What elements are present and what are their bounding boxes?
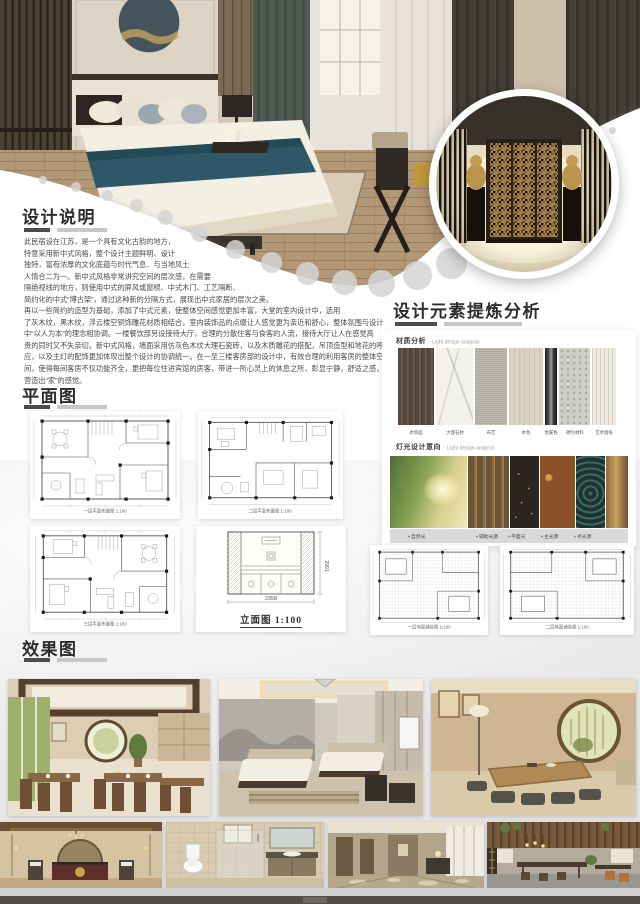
lighting-photo-strip [390, 456, 628, 528]
desc-line: 特意采用新中式风格，整个设计主题鲜明、设计 [24, 248, 383, 260]
title-rule [24, 658, 107, 662]
swatch-marble [436, 348, 473, 425]
desc-line: 此民宿设在江苏，是一个具有文化古韵的地方， [24, 236, 383, 248]
swatch-fabric [475, 348, 507, 425]
plan-caption: 一层地面铺装图 1:100 [407, 624, 450, 629]
desc-line: 应，以及主灯的配饰更加体现出整个设计的协调统一。在一至三楼客房部的设计中，有效合… [24, 351, 383, 363]
lighting-caption-band: 自然光 辅助光源 平面光 主光源 点光源 [390, 529, 628, 543]
light-caption: 辅助光源 [476, 533, 498, 540]
desc-line: 隔绝视线的地方，则使用中式的屏风或窗棂、中式木门、工艺隔断、 [24, 282, 383, 294]
light-caption: 自然光 [408, 533, 425, 540]
light-photo-warm-column [606, 456, 628, 528]
render-photo-guest-bedroom [219, 679, 423, 816]
design-description-paragraph: 此民宿设在江苏，是一个具有文化古韵的地方， 特意采用新中式风格，整个设计主题鲜明… [24, 236, 383, 386]
elevation-drawing: 2358 2991 [196, 526, 346, 610]
section-title-element-analysis: 设计元素提炼分析 [393, 297, 541, 322]
material-swatches [398, 348, 616, 425]
elevation-caption: 立面图 1:100 [240, 612, 302, 628]
swatch-hard-panel [559, 348, 590, 425]
desc-line: 人情合二为一。新中式风格非常讲究空间的层次感，在需要 [24, 271, 383, 283]
material-analysis-label: 材质分析· Light design analysis [396, 336, 488, 346]
plan-caption: 二层地面铺装图 1:100 [545, 624, 588, 629]
design-poster: 设计说明 此民宿设在江苏，是一个具有文化古韵的地方， 特意采用新中式风格，整个设… [0, 0, 640, 904]
elevation-card: 2358 2991 立面图 1:100 [196, 526, 346, 632]
section-title-floor-plan: 平面图 [22, 382, 78, 407]
light-caption: 平面光 [508, 533, 525, 540]
desc-line: 贵的同时又不失亲切。新中式风格，墙面采用仿灰色木纹大理石瓷砖，以及木质雕花的搭配… [24, 340, 383, 352]
section-title-design-description: 设计说明 [22, 203, 96, 228]
swatch-art-wallpaper [592, 348, 616, 425]
desc-line: 简约化的中式“博古架”，通过这种新的分隔方式，展现出中式家居的层次之美。 [24, 294, 383, 306]
floor-plan-card-level1: 一层平面布置图 1:100 [30, 411, 180, 519]
light-photo-wood-rings [540, 456, 576, 528]
desc-line: 再以一些简约的造型为基础，添加了中式元素，使整体空间感觉更加丰富，大堂的室内设计… [24, 305, 383, 317]
footer-light-band [0, 888, 640, 896]
material-swatch-labels: 木饰面 大理石材 布艺 木色 金属色 硬包材料 艺术墙纸 [398, 428, 616, 437]
light-photo-string-lights [510, 456, 539, 528]
render-photo-dining-room [8, 679, 210, 816]
desc-line: 间，使得每间客房不仅功能齐全，更把每位住进宾馆的房客，带进一所心灵上的休息之所，… [24, 363, 383, 375]
light-photo-ripple [576, 456, 605, 528]
lighting-analysis-label: 灯光设计意向· Light design analysis [396, 442, 503, 452]
footer-bar-notch [303, 897, 327, 903]
desc-line: 营造出“家”的感觉。 [24, 375, 383, 387]
inset-lattice-door-photo [429, 89, 619, 279]
desc-line: 独特，富有浓厚的文化底蕴与时代气息、与当地风土 [24, 259, 383, 271]
elevation-width-dim: 2358 [265, 596, 277, 602]
paving-plan-card-level1: 一层地面铺装图 1:100 [370, 545, 488, 635]
floor-plan-card-level2: 二层平面布置图 1:100 [198, 411, 343, 519]
light-photo-wall-sconce [468, 456, 509, 528]
paving-plan-card-level2: 二层地面铺装图 1:100 [500, 545, 634, 635]
floor-plan-card-level3: 三层平面布置图 1:100 [30, 526, 180, 632]
render-photo-lounge-dining [487, 822, 640, 888]
desc-line: 了灰木纹，黑木纹，浮云楼空铜饰雕花材质相结合，室内装饰品的点缀让人感觉更为亲近和… [24, 317, 383, 329]
light-caption: 点光源 [574, 533, 591, 540]
title-rule [24, 405, 107, 409]
section-title-effect-renderings: 效果图 [22, 635, 78, 660]
analysis-panel: 材质分析· Light design analysis 木饰面 大理石材 布艺 … [382, 330, 636, 546]
title-rule [24, 228, 107, 232]
swatch-metal [545, 348, 557, 425]
render-photo-bathroom [166, 822, 324, 888]
title-rule [395, 322, 522, 326]
render-photo-reception [0, 822, 162, 888]
desc-line: 中“以人为本”的理念相协调。一楼餐饮部另设接待大厅，合理的分散住客与食客的人流，… [24, 328, 383, 340]
render-photo-tea-room [431, 679, 636, 816]
plan-caption: 二层平面布置图 1:100 [249, 508, 292, 513]
light-caption: 主光源 [541, 533, 558, 540]
plan-caption: 一层平面布置图 1:100 [83, 508, 126, 513]
swatch-wood-tone [509, 348, 543, 425]
light-photo-natural [390, 456, 467, 528]
plan-caption: 三层平面布置图 1:100 [83, 621, 126, 626]
elevation-height-dim: 2991 [323, 560, 329, 571]
swatch-wood-veneer [398, 348, 434, 425]
render-photo-corridor [328, 822, 484, 888]
